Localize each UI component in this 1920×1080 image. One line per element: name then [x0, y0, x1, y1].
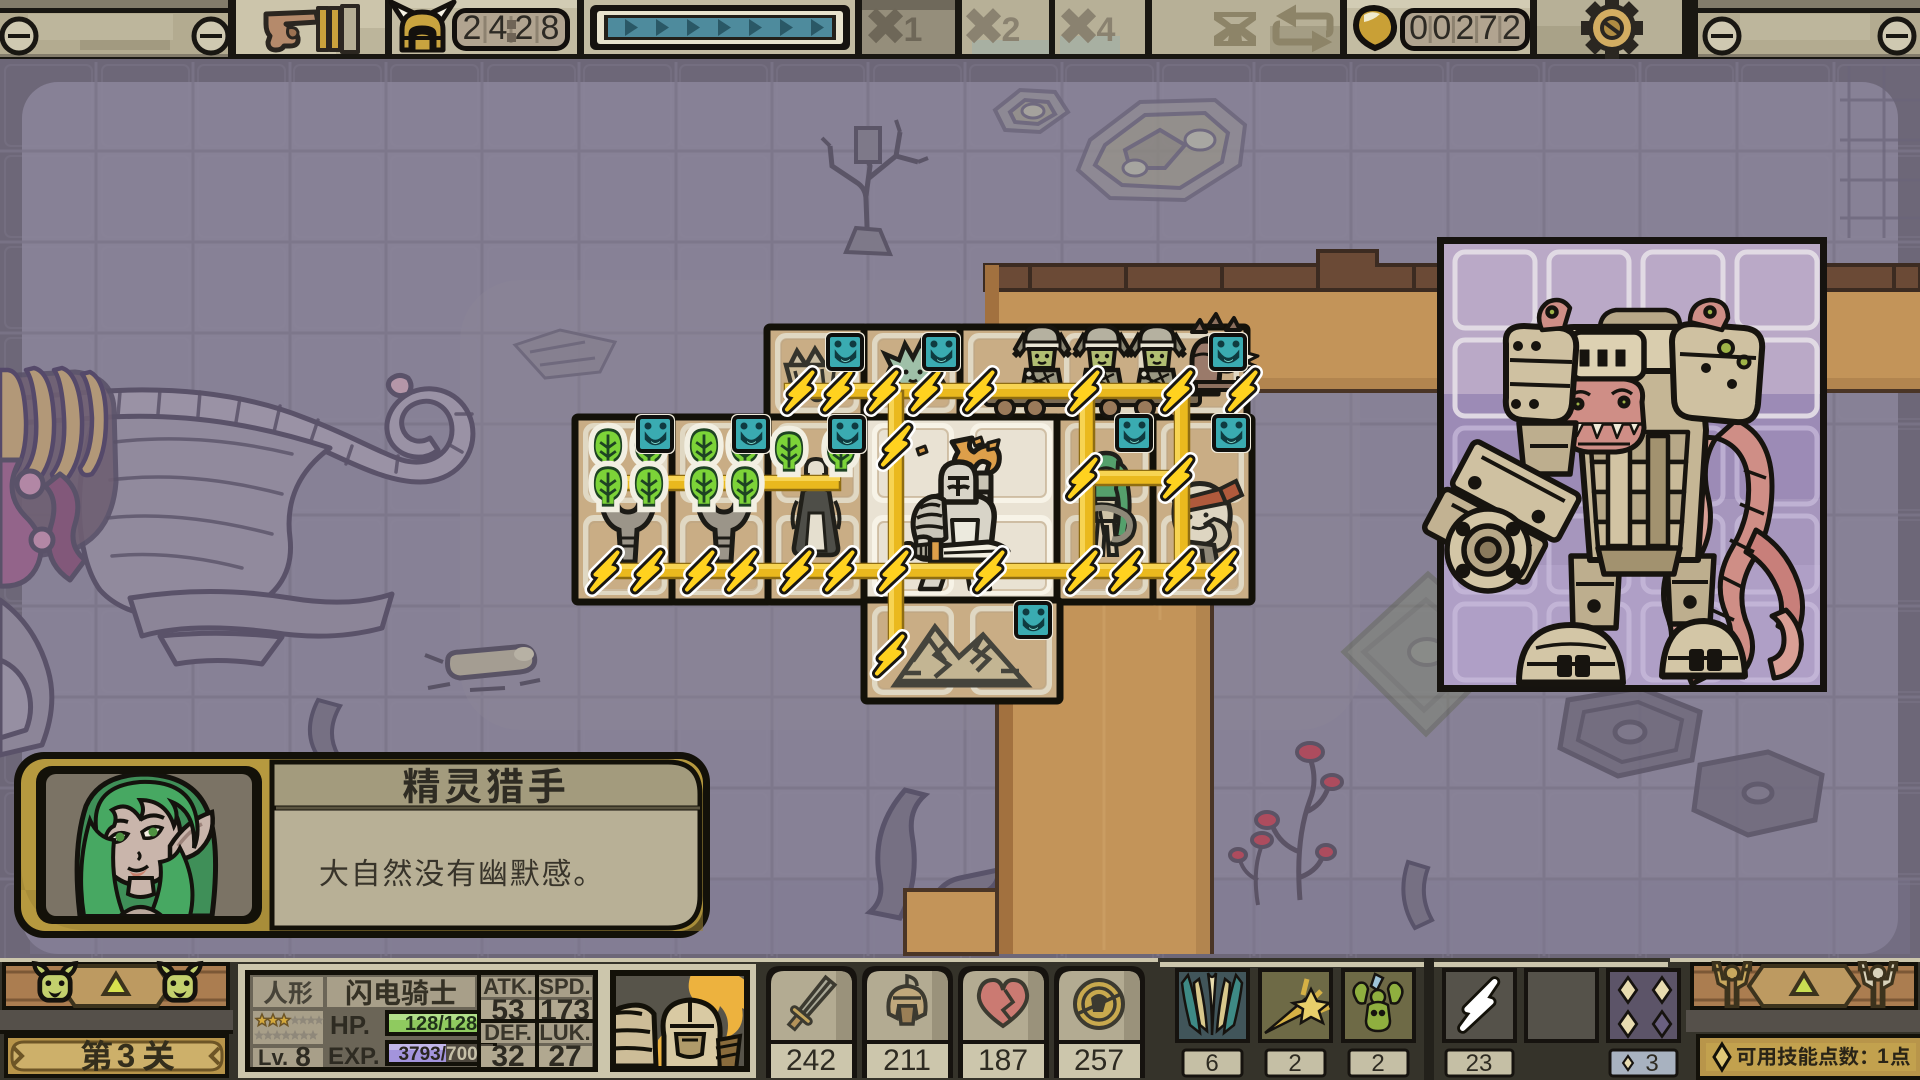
svg-text:2: 2 — [515, 9, 534, 47]
svg-text:Lv.: Lv. — [258, 1045, 288, 1070]
svg-text:2: 2 — [463, 9, 482, 47]
svg-text:7: 7 — [1479, 9, 1498, 47]
svg-text:257: 257 — [1074, 1044, 1124, 1077]
svg-text:2: 2 — [1371, 1050, 1384, 1077]
svg-text:27: 27 — [548, 1040, 581, 1073]
svg-text:0: 0 — [1409, 9, 1428, 47]
svg-text:1: 1 — [904, 11, 923, 49]
svg-text:EXP.: EXP. — [328, 1043, 380, 1070]
svg-text:0: 0 — [1432, 9, 1451, 47]
svg-text:3793/: 3793/ — [398, 1044, 446, 1065]
svg-text:32: 32 — [491, 1040, 524, 1073]
svg-text:2: 2 — [1502, 9, 1521, 47]
svg-text:128/128: 128/128 — [405, 1013, 477, 1035]
svg-text:23: 23 — [1466, 1050, 1493, 1077]
svg-text:HP.: HP. — [330, 1010, 370, 1040]
svg-text:242: 242 — [786, 1044, 836, 1077]
svg-text:4: 4 — [489, 9, 508, 47]
svg-text:187: 187 — [978, 1044, 1028, 1077]
svg-text:2: 2 — [1288, 1050, 1301, 1077]
svg-text:8: 8 — [541, 9, 560, 47]
svg-text:3: 3 — [1645, 1050, 1658, 1077]
svg-text:6: 6 — [1205, 1050, 1218, 1077]
svg-text:1: 1 — [1877, 1045, 1889, 1068]
svg-text:3: 3 — [117, 1037, 135, 1074]
svg-text:211: 211 — [883, 1044, 931, 1077]
svg-text:4: 4 — [1097, 11, 1116, 49]
svg-text:8: 8 — [295, 1041, 311, 1072]
svg-text:2: 2 — [1456, 9, 1475, 47]
svg-text:2: 2 — [1002, 11, 1021, 49]
